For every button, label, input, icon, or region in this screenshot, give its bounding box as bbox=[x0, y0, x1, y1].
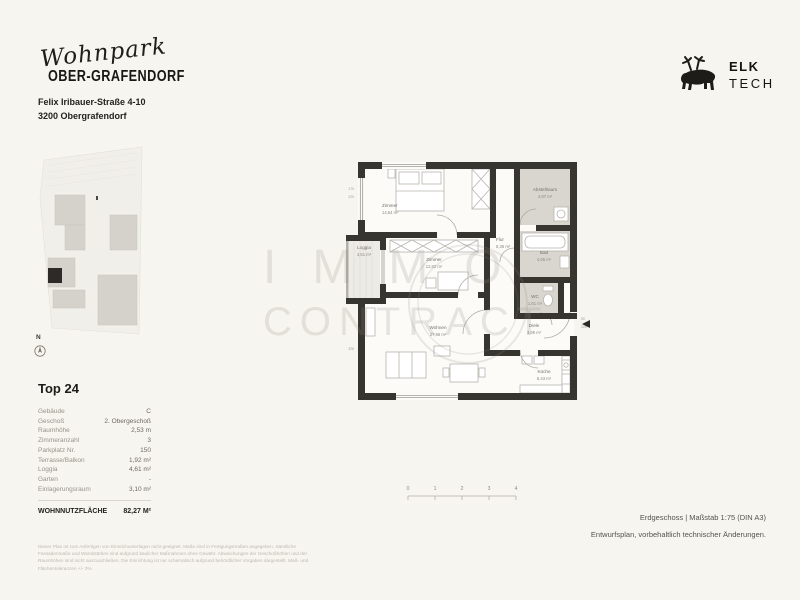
highlighted-unit-marker bbox=[48, 268, 62, 283]
svg-text:2: 2 bbox=[461, 486, 464, 492]
svg-text:0: 0 bbox=[407, 486, 410, 492]
svg-text:Wohnen: Wohnen bbox=[429, 325, 446, 330]
svg-text:3: 3 bbox=[488, 486, 491, 492]
table-row: Raumhöhe2,53 m bbox=[38, 426, 151, 436]
table-row: GebäudeC bbox=[38, 407, 151, 417]
svg-text:14,64 m²: 14,64 m² bbox=[382, 210, 399, 215]
svg-text:WC: WC bbox=[531, 294, 539, 299]
table-row: Terrasse/Balkon1,92 m² bbox=[38, 456, 151, 466]
address-line1: Felix Iribauer-Straße 4-10 bbox=[38, 96, 146, 110]
north-indicator: N bbox=[32, 334, 48, 364]
svg-text:Diele: Diele bbox=[529, 323, 540, 328]
svg-text:Bad: Bad bbox=[540, 250, 549, 255]
svg-text:328: 328 bbox=[348, 347, 354, 351]
svg-text:220: 220 bbox=[348, 195, 354, 199]
table-row: Parkplatz Nr.150 bbox=[38, 446, 151, 456]
brand-script: Wohnpark bbox=[39, 33, 168, 72]
compass-icon bbox=[32, 341, 48, 359]
svg-text:12,82 m²: 12,82 m² bbox=[426, 264, 443, 269]
logo-text-tech: TECH bbox=[729, 76, 775, 91]
unit-title: Top 24 bbox=[38, 381, 151, 396]
svg-text:170: 170 bbox=[348, 187, 354, 191]
site-plan bbox=[30, 138, 162, 350]
address-line2: 3200 Obergrafendorf bbox=[38, 110, 146, 124]
logo-text-elk: ELK bbox=[729, 59, 760, 74]
elk-icon bbox=[678, 55, 724, 95]
svg-text:3,95 m²: 3,95 m² bbox=[527, 330, 542, 335]
svg-text:Flur: Flur bbox=[496, 237, 504, 242]
svg-text:4: 4 bbox=[515, 486, 518, 492]
table-row: Geschoß2. Obergeschoß bbox=[38, 417, 151, 427]
scale-bar: 0 1 2 3 4 bbox=[404, 483, 524, 503]
floor-plan: Zimmer 14,64 m² Abstellraum 4,87 m² Zimm… bbox=[338, 150, 596, 410]
svg-text:4,65 m²: 4,65 m² bbox=[537, 257, 552, 262]
washing-machine-icon bbox=[554, 207, 568, 221]
svg-text:Loggia: Loggia bbox=[357, 245, 371, 250]
svg-text:Abstellraum: Abstellraum bbox=[533, 187, 557, 192]
table-row: Zimmeranzahl3 bbox=[38, 436, 151, 446]
svg-text:4,61 m²: 4,61 m² bbox=[357, 252, 372, 257]
svg-text:5,43 m²: 5,43 m² bbox=[537, 376, 552, 381]
unit-details-panel: Top 24 GebäudeC Geschoß2. Obergeschoß Ra… bbox=[38, 381, 151, 515]
table-row: Einlagerungsraum3,10 m² bbox=[38, 485, 151, 495]
legal-disclaimer: Dieser Plan ist zum Anfertigen von Einre… bbox=[38, 543, 325, 572]
table-row: Loggia4,61 m² bbox=[38, 465, 151, 475]
svg-text:8,36 m²: 8,36 m² bbox=[496, 244, 511, 249]
floorplan-document: Wohnpark OBER-GRAFENDORF Felix Iribauer-… bbox=[0, 0, 800, 600]
brand-name: OBER-GRAFENDORF bbox=[48, 68, 185, 86]
plan-scale-info: Erdgeschoss | Maßstab 1:75 (DIN A3) bbox=[640, 513, 766, 522]
svg-text:Zimmer: Zimmer bbox=[382, 203, 398, 208]
svg-text:1,61 m²: 1,61 m² bbox=[528, 301, 543, 306]
table-row: Garten- bbox=[38, 475, 151, 485]
north-label: N bbox=[36, 334, 48, 341]
svg-text:27,96 m²: 27,96 m² bbox=[430, 332, 447, 337]
svg-text:1: 1 bbox=[434, 486, 437, 492]
plan-revision-note: Entwurfsplan, vorbehaltlich technischer … bbox=[591, 530, 766, 539]
svg-text:4,87 m²: 4,87 m² bbox=[538, 194, 553, 199]
elk-tech-logo: ELK TECH bbox=[678, 50, 778, 104]
svg-text:Zimmer: Zimmer bbox=[426, 257, 442, 262]
svg-text:Küche: Küche bbox=[537, 369, 550, 374]
project-address: Felix Iribauer-Straße 4-10 3200 Obergraf… bbox=[38, 96, 146, 123]
living-area-total-row: WOHNNUTZFLÄCHE 82,27 M² bbox=[38, 500, 151, 515]
svg-text:90: 90 bbox=[581, 317, 585, 321]
